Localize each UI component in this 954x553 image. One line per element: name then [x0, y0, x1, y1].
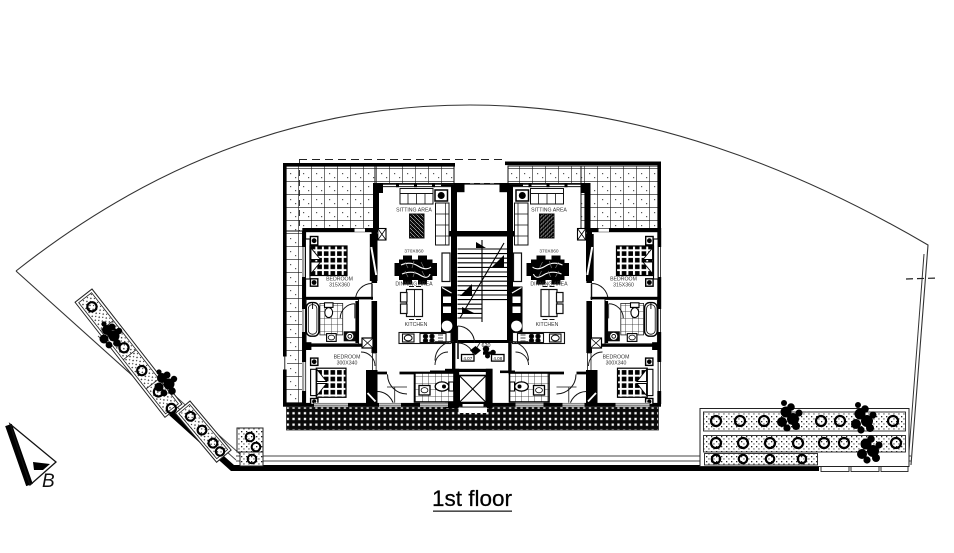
svg-text:SITTING AREA: SITTING AREA [531, 208, 567, 214]
svg-text:315X360: 315X360 [613, 283, 634, 289]
svg-text:DINNING AREA: DINNING AREA [530, 282, 568, 288]
svg-text:300X340: 300X340 [606, 361, 627, 367]
svg-text:4.08: 4.08 [493, 356, 502, 361]
svg-text:370X860: 370X860 [404, 249, 424, 255]
svg-text:4.07: 4.07 [463, 356, 472, 361]
svg-text:370X860: 370X860 [539, 249, 559, 255]
svg-text:B: B [42, 471, 55, 492]
svg-text:315X360: 315X360 [329, 283, 350, 289]
svg-text:1st floor: 1st floor [432, 486, 513, 511]
svg-text:KITCHEN: KITCHEN [536, 322, 559, 328]
svg-text:KITCHEN: KITCHEN [405, 322, 428, 328]
svg-text:DINNING AREA: DINNING AREA [395, 282, 433, 288]
svg-text:SITTING AREA: SITTING AREA [396, 208, 432, 214]
svg-text:620: 620 [482, 343, 491, 349]
svg-text:300X340: 300X340 [337, 361, 358, 367]
